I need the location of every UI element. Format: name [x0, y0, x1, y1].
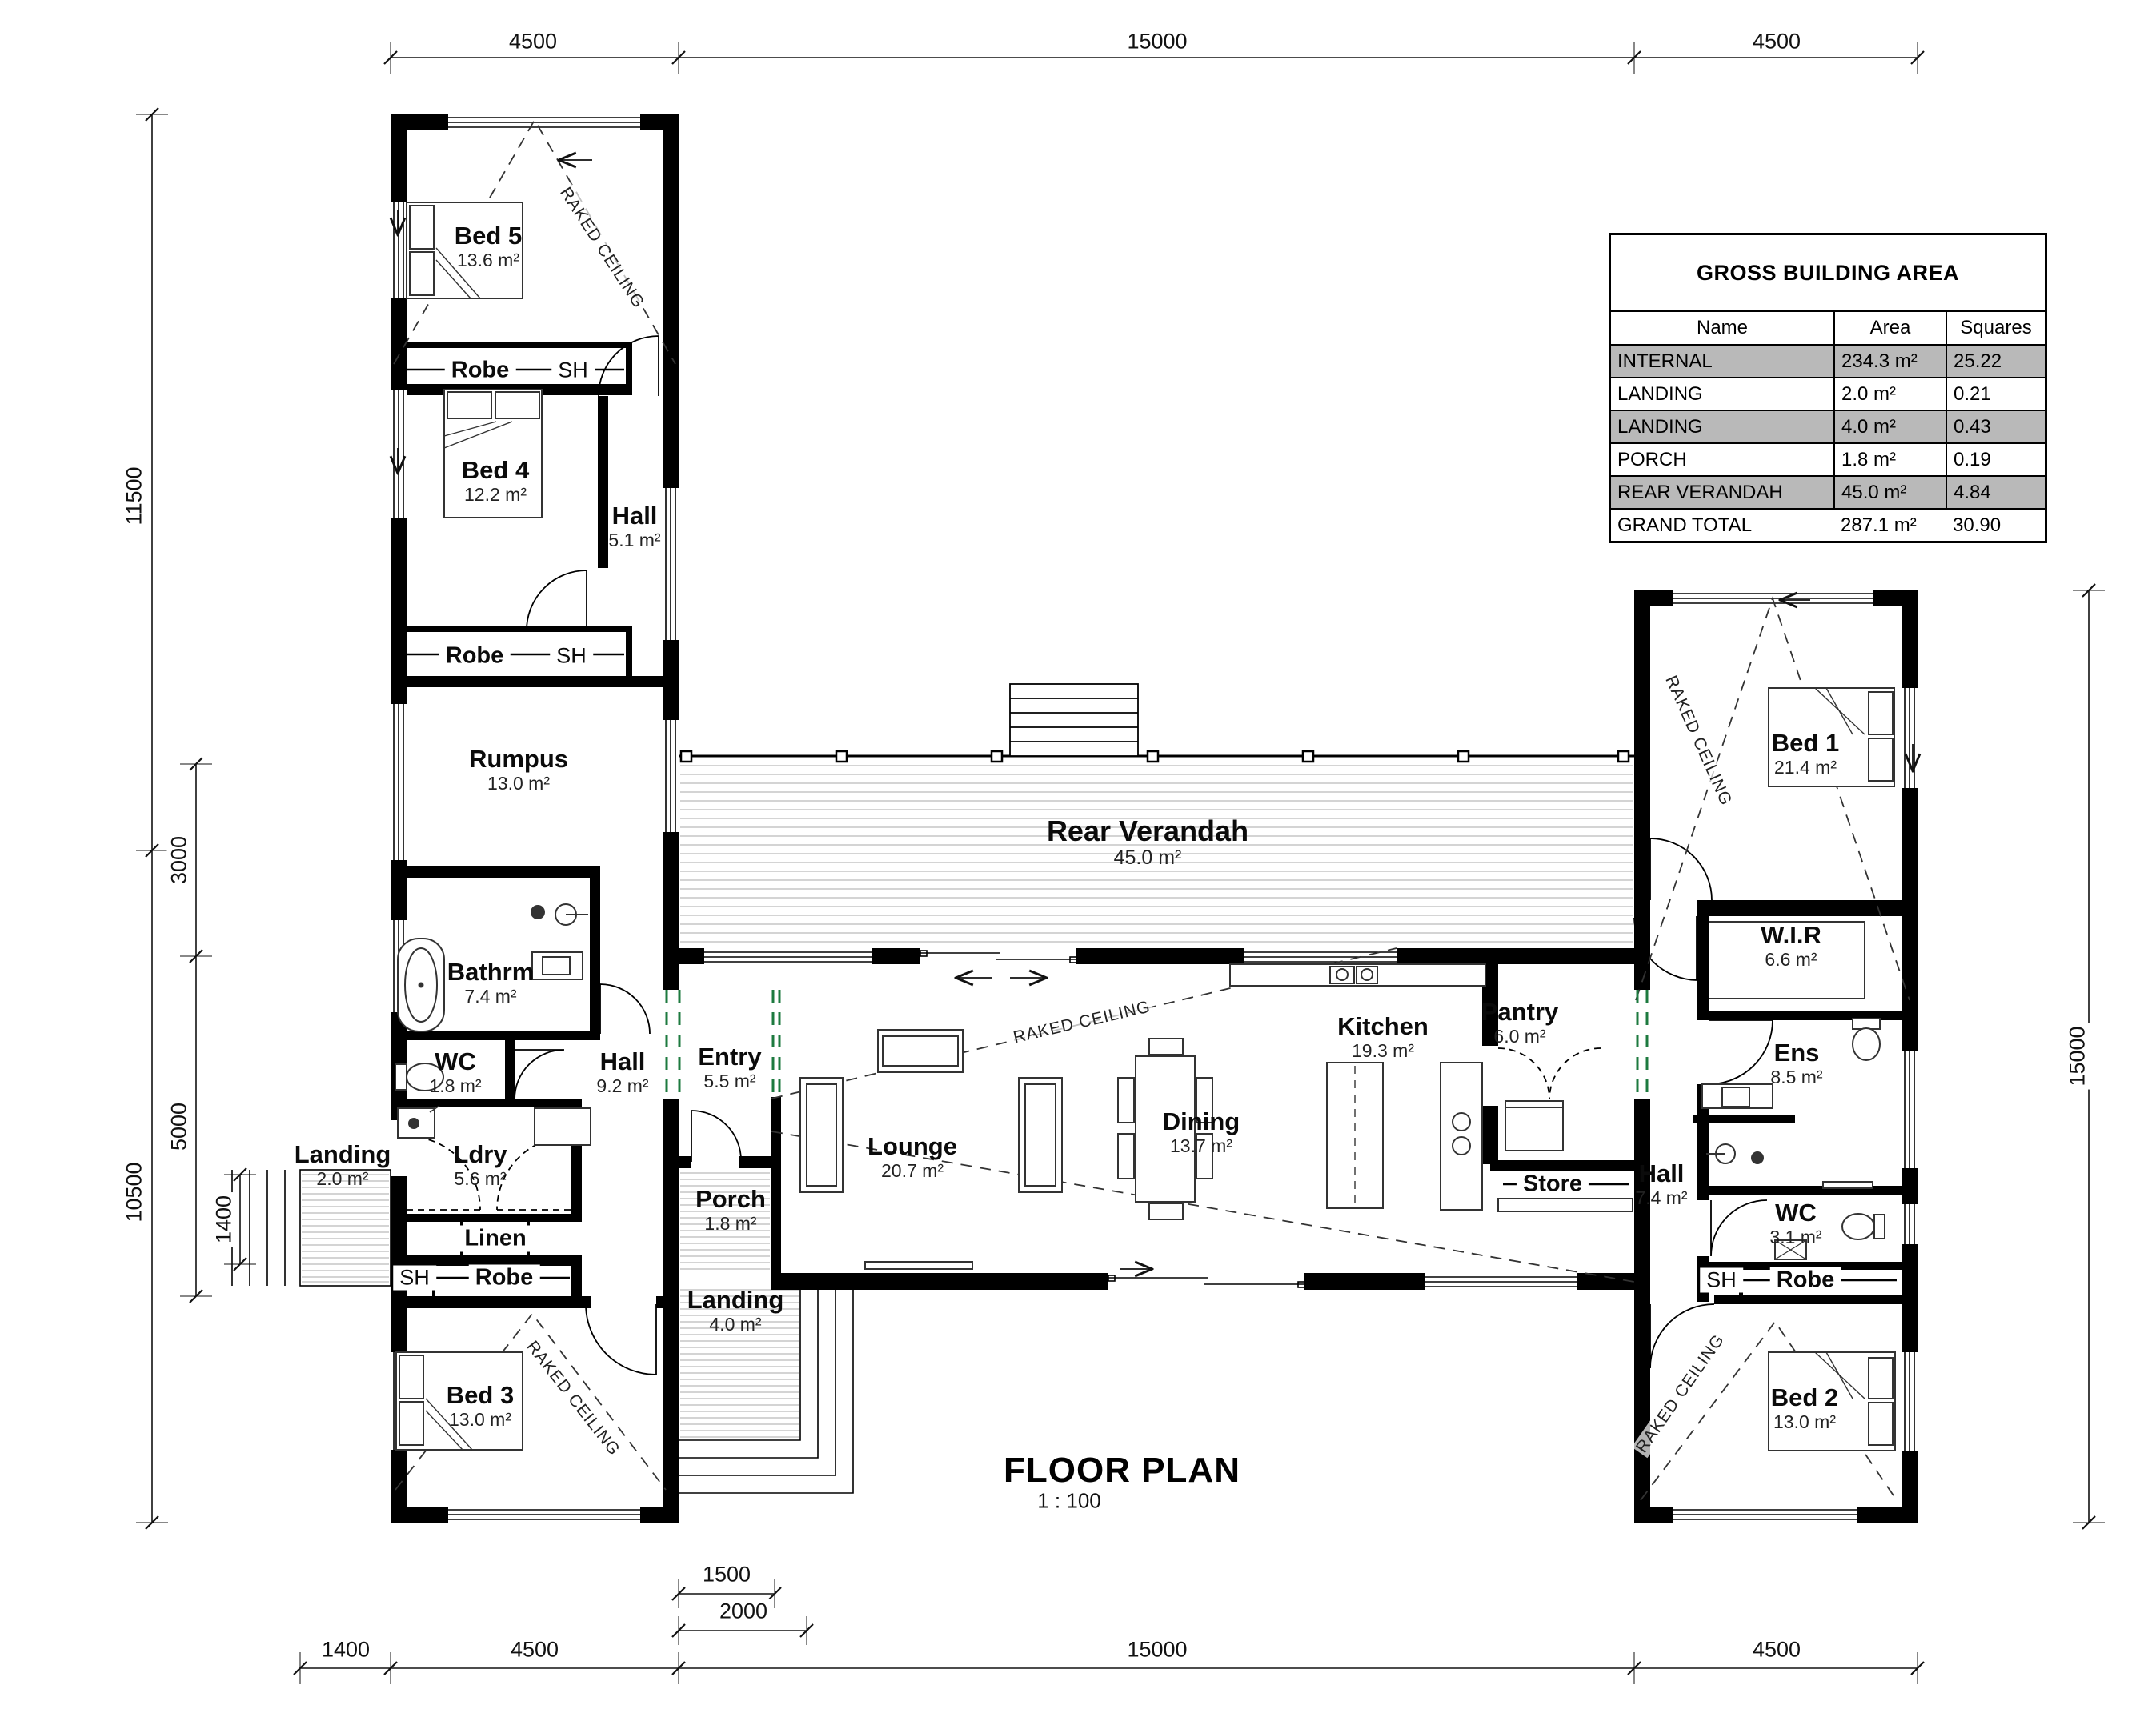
closet-label-sh: SH	[551, 358, 595, 383]
cell-squares: 30.90	[1946, 509, 2046, 542]
room-label-bathrm: Bathrm7.4 m²	[447, 959, 535, 1007]
table-row: LANDING 4.0 m² 0.43	[1610, 410, 2046, 443]
closet-label-linen: Linen	[458, 1226, 532, 1252]
room-label-rear-verandah: Rear Verandah45.0 m²	[1047, 815, 1248, 868]
rear-verandah-deck	[679, 684, 1634, 942]
room-label-porch: Porch1.8 m²	[695, 1186, 766, 1234]
closet-label-robe: Robe	[1770, 1267, 1841, 1294]
closet-label-robe: Robe	[439, 643, 511, 670]
dim-top-left: 4500	[506, 30, 560, 54]
dim-left-5000: 5000	[167, 1099, 192, 1154]
room-label-lounge: Lounge20.7 m²	[868, 1133, 957, 1181]
cell-area: 234.3 m²	[1834, 345, 1946, 378]
room-label-landing-front: Landing4.0 m²	[687, 1287, 784, 1335]
room-label-bed2: Bed 213.0 m²	[1771, 1384, 1838, 1432]
dim-left-10500: 10500	[122, 1159, 147, 1225]
cell-name: INTERNAL	[1610, 345, 1835, 378]
rear-steps	[1010, 684, 1138, 756]
closet-label-sh: SH	[1700, 1268, 1743, 1293]
cell-squares: 0.21	[1946, 378, 2046, 410]
dim-left-1400: 1400	[212, 1192, 237, 1247]
room-label-hall-right: Hall7.4 m²	[1635, 1160, 1687, 1208]
room-label-pantry: Pantry6.0 m²	[1481, 999, 1558, 1047]
dim-bottom-4500b: 4500	[1749, 1638, 1804, 1663]
fridge	[1505, 1101, 1563, 1151]
cell-squares: 0.19	[1946, 443, 2046, 476]
cell-name: REAR VERANDAH	[1610, 476, 1835, 509]
side-landing-deck	[302, 1175, 389, 1282]
room-label-bed5: Bed 513.6 m²	[455, 222, 522, 270]
col-header-squares: Squares	[1946, 311, 2046, 345]
col-header-name: Area	[1834, 311, 1946, 345]
dim-bottom-1400: 1400	[319, 1638, 373, 1663]
dim-left-11500: 11500	[122, 463, 147, 528]
table-row: INTERNAL 234.3 m² 25.22	[1610, 345, 2046, 378]
room-label-bed3: Bed 313.0 m²	[447, 1382, 514, 1430]
cell-area: 4.0 m²	[1834, 410, 1946, 443]
room-label-hall-upper: Hall5.1 m²	[608, 502, 660, 550]
room-label-landing-side: Landing2.0 m²	[295, 1141, 391, 1189]
cell-squares: 25.22	[1946, 345, 2046, 378]
room-label-bed1: Bed 121.4 m²	[1772, 730, 1839, 778]
closet-label-store: Store	[1517, 1171, 1589, 1198]
dim-right-15000: 15000	[2066, 1023, 2090, 1089]
room-label-rumpus: Rumpus13.0 m²	[469, 746, 568, 794]
laundry-bench	[535, 1108, 591, 1145]
room-label-entry: Entry5.5 m²	[698, 1043, 761, 1091]
room-label-kitchen: Kitchen19.3 m²	[1337, 1013, 1429, 1061]
dim-top-mid: 15000	[1124, 30, 1190, 54]
dim-bottom-1500: 1500	[699, 1563, 754, 1587]
table-row: PORCH 1.8 m² 0.19	[1610, 443, 2046, 476]
room-label-ens: Ens8.5 m²	[1770, 1039, 1822, 1087]
bath-fixture	[398, 939, 444, 1031]
room-label-wir: W.I.R6.6 m²	[1761, 922, 1821, 970]
closet-label-sh: SH	[550, 644, 593, 669]
page-title: FLOOR PLAN	[1004, 1451, 1240, 1491]
table-header-row: Name Area Squares	[1610, 311, 2046, 345]
dim-bottom-2000: 2000	[716, 1599, 771, 1624]
cell-area: 2.0 m²	[1834, 378, 1946, 410]
table-title: GROSS BUILDING AREA	[1610, 234, 2046, 312]
cell-area: 287.1 m²	[1834, 509, 1946, 542]
cell-name: PORCH	[1610, 443, 1835, 476]
table-row: LANDING 2.0 m² 0.21	[1610, 378, 2046, 410]
store-shelf	[1498, 1199, 1633, 1211]
laundry-sink	[398, 1106, 439, 1138]
cell-name: GRAND TOTAL	[1610, 509, 1835, 542]
room-label-wc-right: WC3.1 m²	[1769, 1199, 1821, 1247]
table-row: REAR VERANDAH 45.0 m² 4.84	[1610, 476, 2046, 509]
cell-name: LANDING	[1610, 410, 1835, 443]
closet-label-robe: Robe	[445, 358, 516, 384]
dim-bottom-15000: 15000	[1124, 1638, 1190, 1663]
room-label-ldry: Ldry5.6 m²	[453, 1141, 507, 1189]
room-label-dining: Dining13.7 m²	[1163, 1108, 1240, 1156]
drawing-scale: 1 : 100	[1037, 1489, 1101, 1514]
dim-top-right: 4500	[1749, 30, 1804, 54]
room-label-hall-mid: Hall9.2 m²	[596, 1048, 648, 1096]
dim-bottom-4500a: 4500	[507, 1638, 562, 1663]
table-grand-total-row: GRAND TOTAL 287.1 m² 30.90	[1610, 509, 2046, 542]
room-label-wc-left: WC1.8 m²	[429, 1048, 481, 1096]
col-header-name: Name	[1610, 311, 1835, 345]
gross-building-area-table: GROSS BUILDING AREA Name Area Squares IN…	[1609, 233, 2047, 543]
floor-plan-page: Bed 513.6 m² Bed 412.2 m² Hall5.1 m² Rum…	[0, 0, 2156, 1717]
cell-area: 1.8 m²	[1834, 443, 1946, 476]
closet-label-sh: SH	[393, 1266, 436, 1291]
cell-squares: 4.84	[1946, 476, 2046, 509]
cell-name: LANDING	[1610, 378, 1835, 410]
cell-squares: 0.43	[1946, 410, 2046, 443]
dim-left-3000: 3000	[167, 833, 192, 887]
closet-label-robe: Robe	[469, 1265, 540, 1291]
room-label-bed4: Bed 412.2 m²	[462, 457, 529, 505]
cell-area: 45.0 m²	[1834, 476, 1946, 509]
floor-drain-icon	[531, 906, 544, 919]
